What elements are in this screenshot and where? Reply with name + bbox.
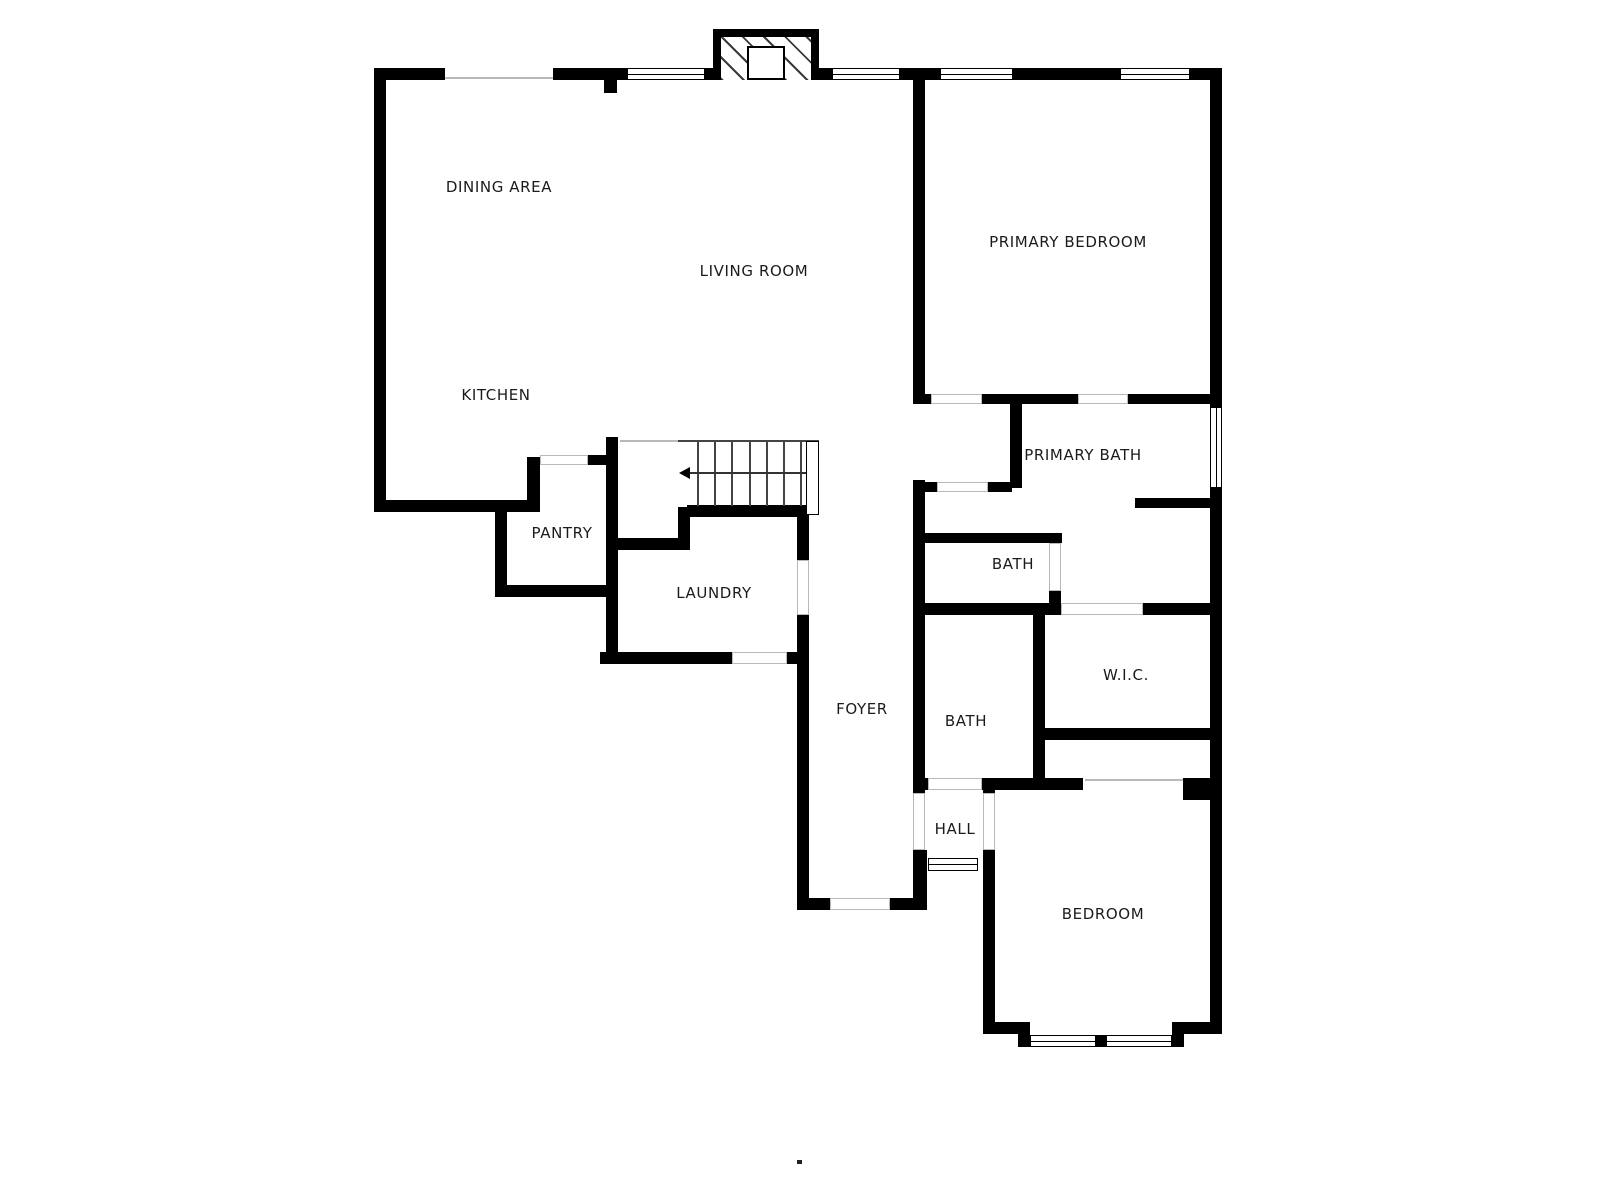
door-opening xyxy=(983,793,995,850)
wall-segment xyxy=(913,394,931,404)
wall-segment xyxy=(1128,394,1222,404)
staircase xyxy=(678,440,819,506)
wall-segment xyxy=(687,505,807,517)
window-symbol xyxy=(1120,68,1190,80)
wall-segment xyxy=(1018,1030,1030,1047)
wall-segment xyxy=(982,778,1083,790)
wall-segment xyxy=(705,68,713,80)
wall-segment xyxy=(913,613,925,793)
wall-segment xyxy=(606,538,687,550)
door-opening xyxy=(732,652,787,664)
opening-line xyxy=(1085,779,1183,781)
stair-direction-line xyxy=(690,472,806,474)
door-opening xyxy=(931,394,982,404)
stair-tread xyxy=(749,441,751,506)
room-label-dining-area: DINING AREA xyxy=(446,178,552,196)
floor-plan: DINING AREALIVING ROOMKITCHENPRIMARY BED… xyxy=(0,0,1600,1200)
stair-tread xyxy=(697,441,699,506)
wall-segment xyxy=(495,507,507,597)
wall-segment xyxy=(913,533,1062,543)
opening-line xyxy=(445,77,553,79)
room-label-hall: HALL xyxy=(935,820,976,838)
window-symbol xyxy=(1106,1035,1172,1047)
wall-segment xyxy=(527,457,540,504)
stair-tread xyxy=(800,441,802,506)
door-opening xyxy=(1078,394,1128,404)
wall-segment xyxy=(606,437,618,664)
room-label-living-room: LIVING ROOM xyxy=(700,262,809,280)
room-label-primary-bedroom: PRIMARY BEDROOM xyxy=(989,233,1147,251)
door-opening xyxy=(913,793,925,850)
wall-segment xyxy=(900,68,940,80)
door-opening xyxy=(937,482,988,492)
wall-segment xyxy=(913,480,925,613)
wall-segment xyxy=(913,850,927,910)
wall-segment xyxy=(1210,68,1222,407)
window-symbol xyxy=(627,68,705,80)
wall-segment xyxy=(797,615,809,898)
wall-segment xyxy=(588,455,608,465)
wall-segment xyxy=(1013,68,1120,80)
stair-direction-arrow-icon xyxy=(679,467,690,479)
artifact-dot xyxy=(797,1160,802,1164)
wall-segment xyxy=(913,778,928,790)
room-label-foyer: FOYER xyxy=(836,700,888,718)
wall-segment xyxy=(819,68,832,80)
wall-segment xyxy=(797,898,830,910)
window-symbol xyxy=(1030,1035,1096,1047)
stair-tread xyxy=(714,441,716,506)
window-symbol xyxy=(832,68,900,80)
room-label-kitchen: KITCHEN xyxy=(461,386,530,404)
opening-line xyxy=(620,440,678,442)
wall-segment xyxy=(988,482,1012,492)
stair-tread xyxy=(766,441,768,506)
wall-segment xyxy=(1135,498,1222,508)
wall-segment xyxy=(1049,591,1061,603)
wall-segment xyxy=(600,652,732,664)
wall-segment xyxy=(983,850,995,1022)
door-opening xyxy=(797,560,809,615)
wall-segment xyxy=(604,80,617,93)
room-label-wic: W.I.C. xyxy=(1103,666,1149,684)
door-opening xyxy=(830,898,890,910)
wall-segment xyxy=(982,394,1078,404)
room-label-laundry: LAUNDRY xyxy=(676,584,752,602)
wall-segment xyxy=(495,585,618,597)
room-label-bath-primary-wc: BATH xyxy=(992,555,1034,573)
wall-segment xyxy=(1172,1022,1222,1034)
wall-segment xyxy=(1210,488,1222,1033)
wall-segment xyxy=(1033,728,1222,740)
door-opening xyxy=(1049,543,1061,591)
wall-segment xyxy=(1096,1035,1106,1047)
room-label-primary-bath: PRIMARY BATH xyxy=(1024,446,1142,464)
wall-segment xyxy=(374,500,540,512)
wall-segment xyxy=(1010,404,1022,488)
room-label-bath-hall: BATH xyxy=(945,712,987,730)
wall-segment xyxy=(374,68,386,512)
room-label-pantry: PANTRY xyxy=(532,524,593,542)
wall-segment xyxy=(678,507,690,550)
wall-segment xyxy=(1033,613,1045,782)
door-opening xyxy=(1061,603,1143,615)
window-symbol xyxy=(1210,407,1222,488)
wall-segment xyxy=(1143,603,1222,615)
stair-tread xyxy=(783,441,785,506)
wall-segment xyxy=(913,80,925,394)
fireplace-firebox xyxy=(747,46,785,80)
wall-segment xyxy=(553,68,627,80)
wall-segment xyxy=(1183,778,1212,800)
window-symbol xyxy=(940,68,1013,80)
wall-segment xyxy=(983,778,995,793)
door-opening xyxy=(928,778,982,790)
door-opening xyxy=(540,455,588,465)
room-label-bedroom: BEDROOM xyxy=(1062,905,1145,923)
stair-tread xyxy=(731,441,733,506)
stair-rail xyxy=(806,441,819,515)
fireplace xyxy=(713,29,819,80)
window-symbol xyxy=(928,858,978,871)
